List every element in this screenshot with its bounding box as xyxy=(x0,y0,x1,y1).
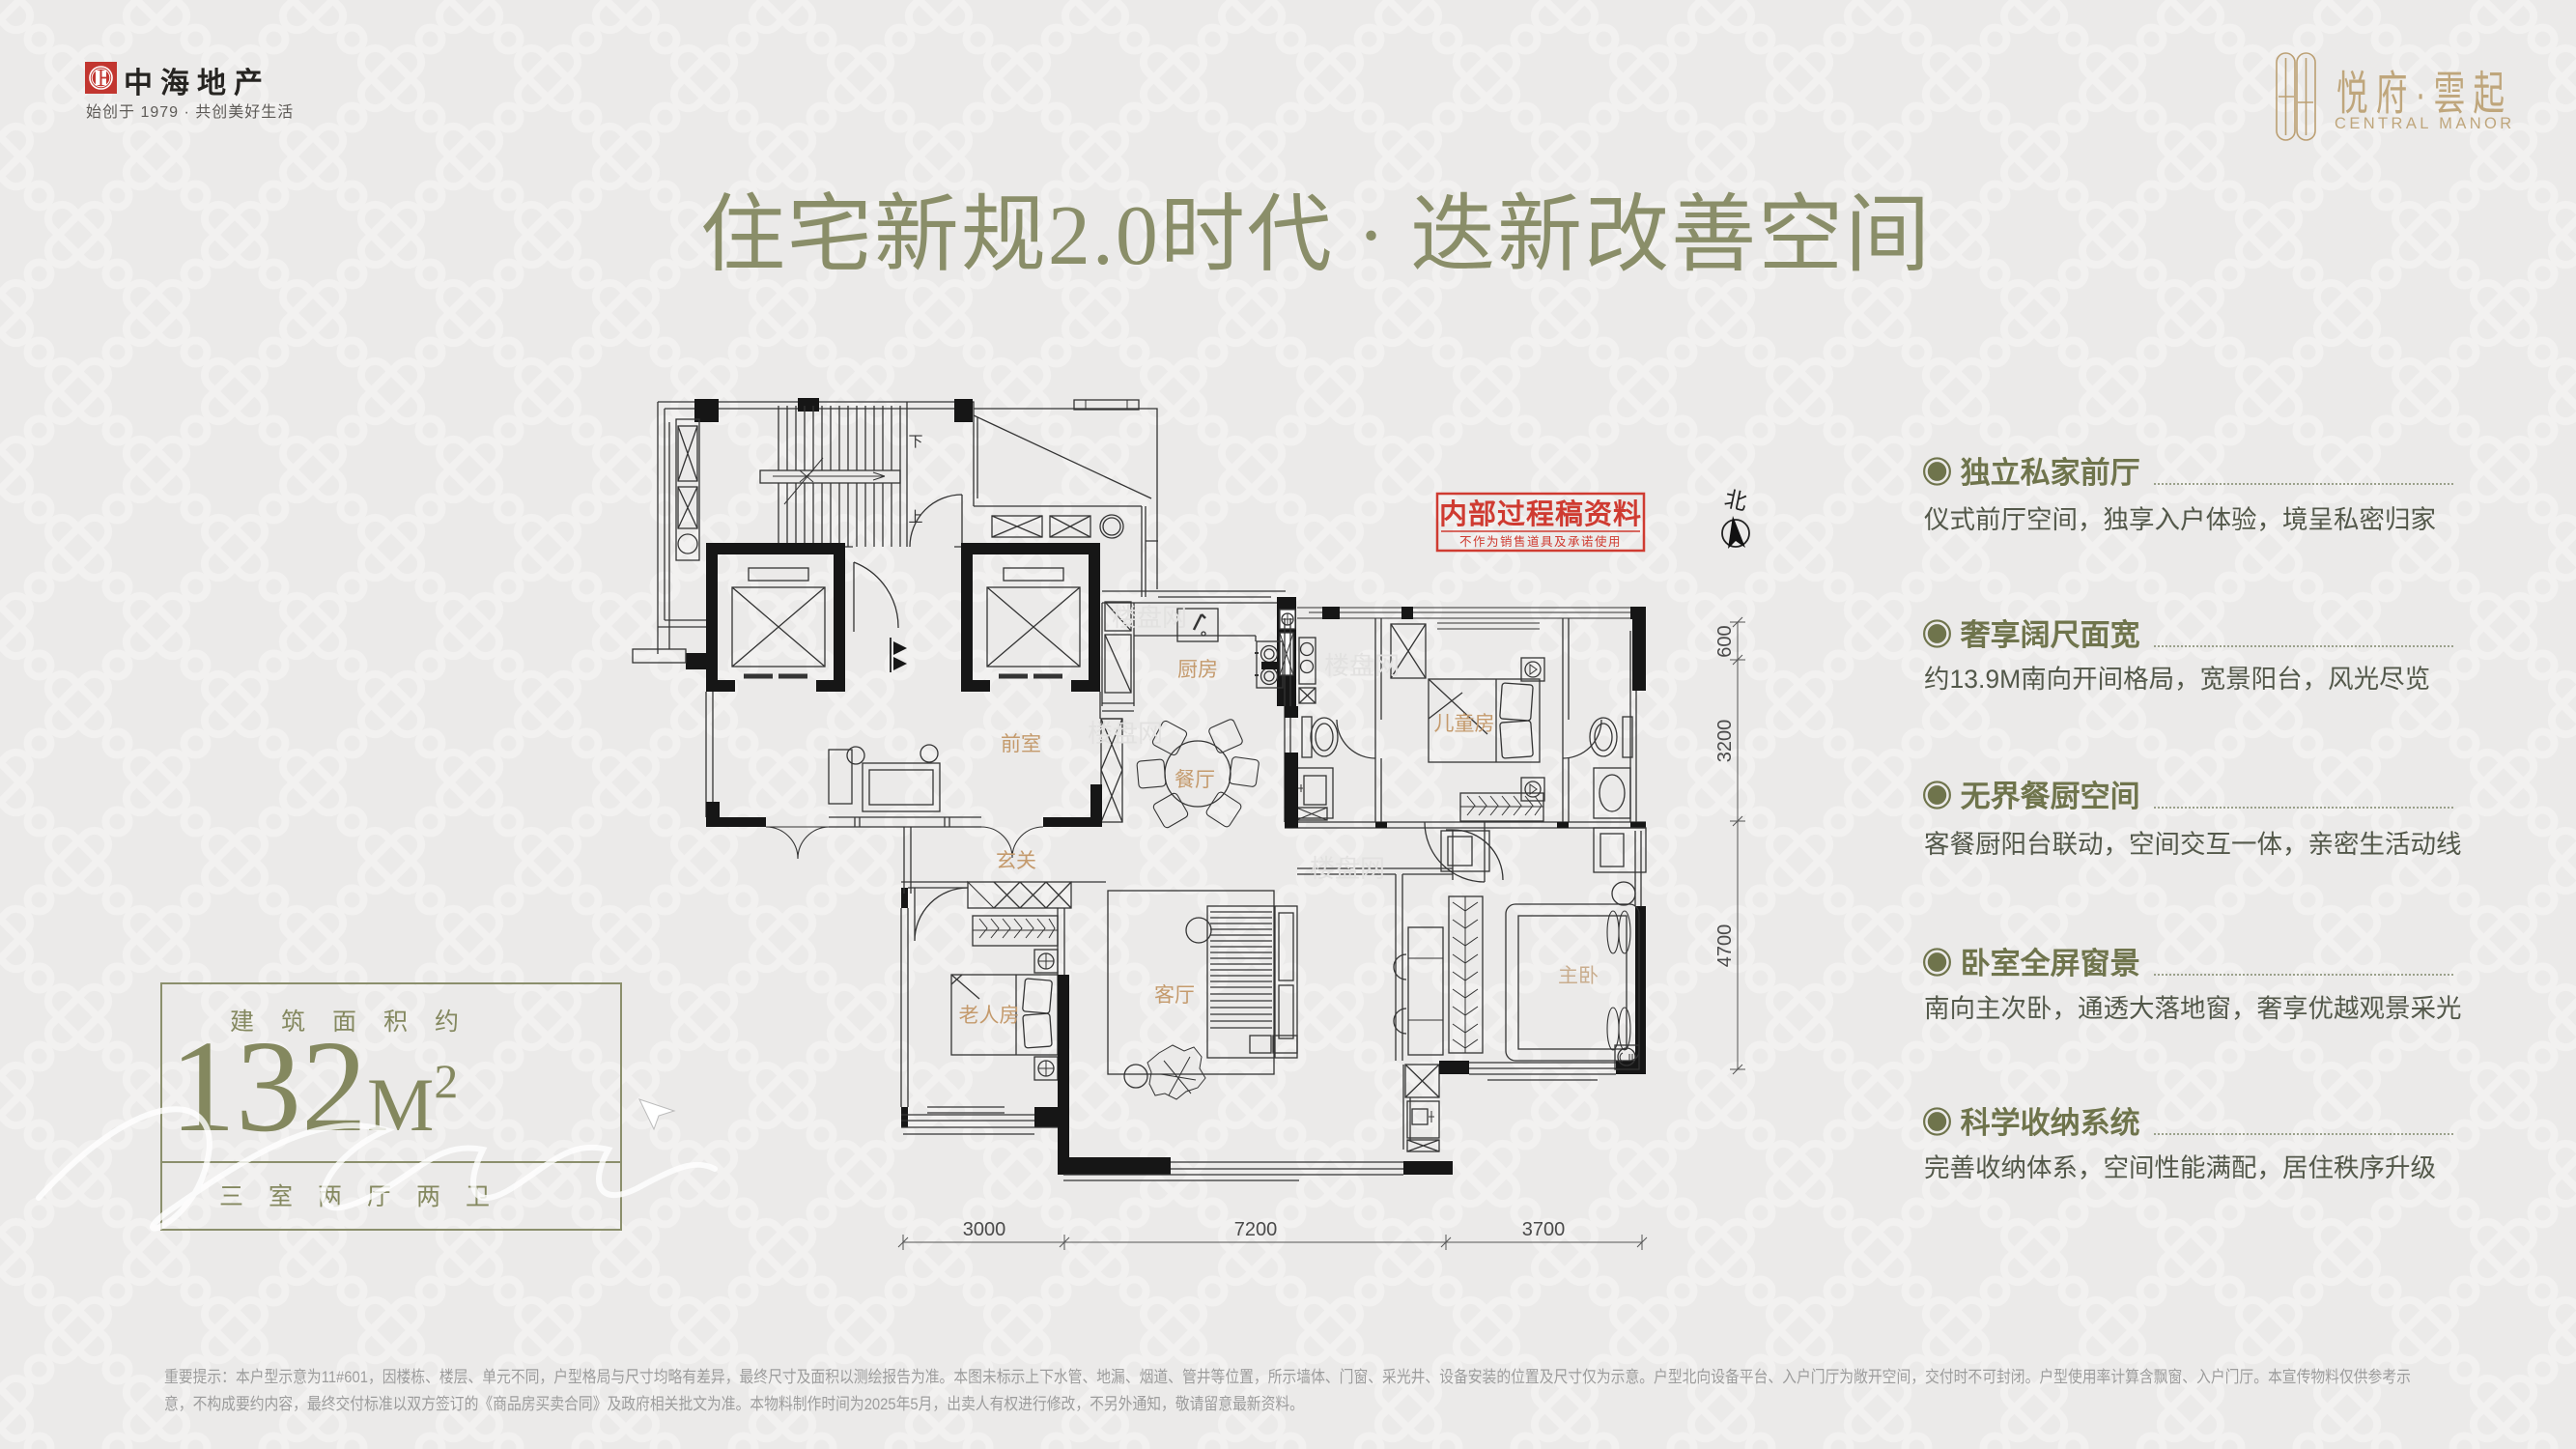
svg-text:儿童房: 儿童房 xyxy=(1434,713,1495,735)
svg-text:厨房: 厨房 xyxy=(1177,659,1218,681)
svg-text:7200: 7200 xyxy=(1234,1219,1278,1240)
svg-text:老人房: 老人房 xyxy=(959,1005,1020,1027)
svg-text:3200: 3200 xyxy=(1714,720,1736,763)
svg-text:客厅: 客厅 xyxy=(1154,984,1195,1007)
svg-text:600: 600 xyxy=(1714,625,1736,657)
svg-text:楼盘网: 楼盘网 xyxy=(1088,719,1163,748)
svg-text:玄关: 玄关 xyxy=(996,850,1036,872)
svg-text:4700: 4700 xyxy=(1714,924,1736,968)
svg-text:下: 下 xyxy=(908,434,922,450)
svg-text:北: 北 xyxy=(1722,486,1749,515)
svg-text:主卧: 主卧 xyxy=(1558,965,1599,987)
svg-text:3700: 3700 xyxy=(1522,1219,1566,1240)
svg-text:楼盘网: 楼盘网 xyxy=(1112,603,1187,632)
svg-text:3000: 3000 xyxy=(963,1219,1006,1240)
svg-text:餐厅: 餐厅 xyxy=(1175,769,1215,791)
svg-text:内部过程稿资料: 内部过程稿资料 xyxy=(1439,497,1642,530)
svg-text:楼盘网: 楼盘网 xyxy=(1324,651,1400,680)
svg-text:不作为销售道具及承诺使用: 不作为销售道具及承诺使用 xyxy=(1459,534,1622,549)
svg-text:楼盘网: 楼盘网 xyxy=(1310,854,1385,883)
svg-text:前室: 前室 xyxy=(1001,733,1041,755)
